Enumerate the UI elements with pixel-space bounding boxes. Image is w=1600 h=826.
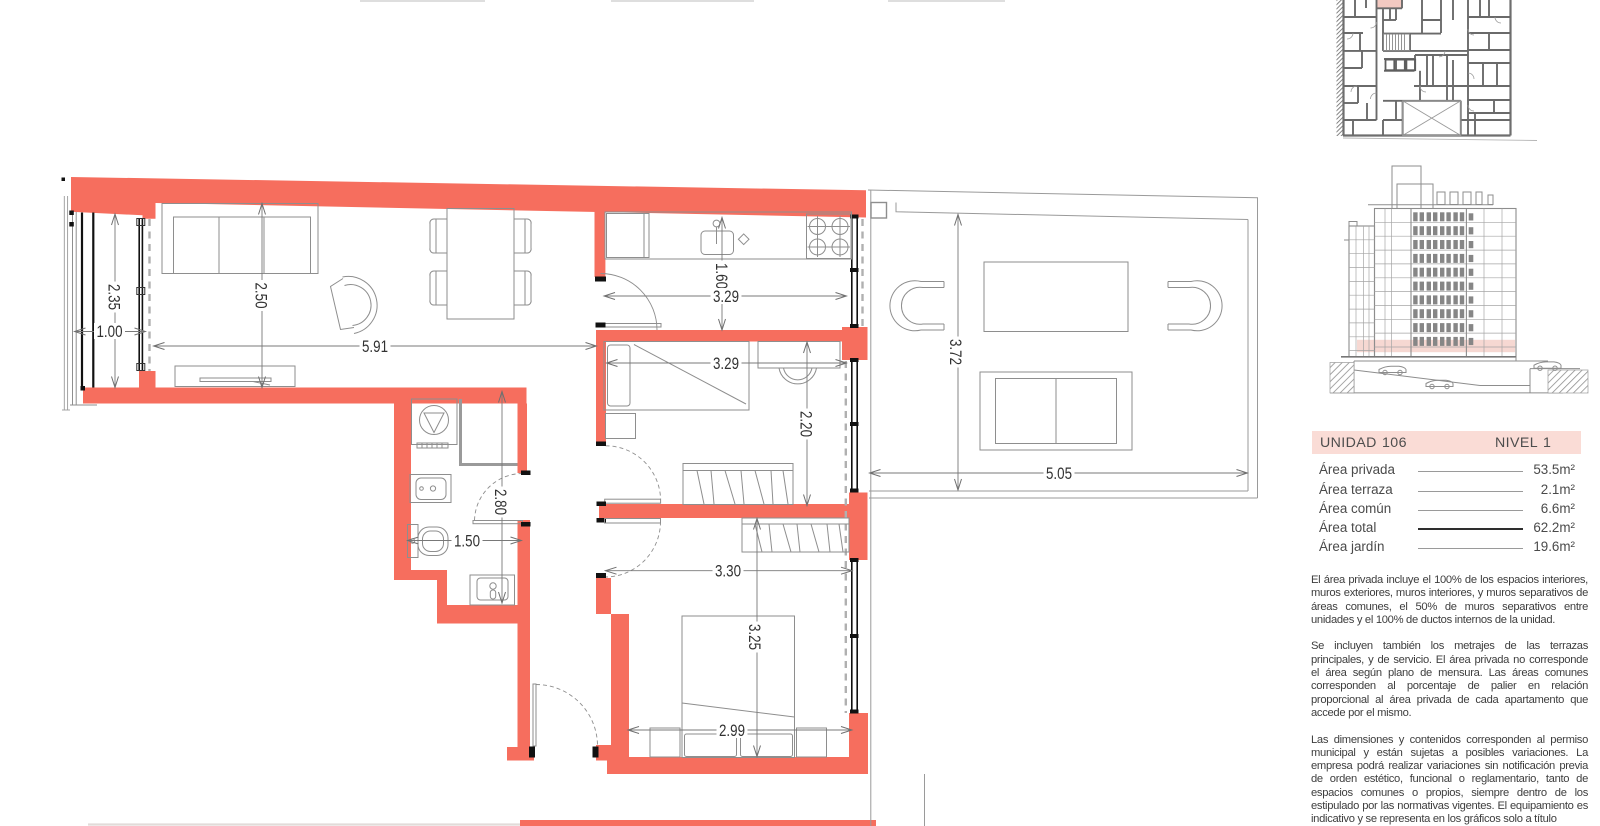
- svg-text:1.00: 1.00: [97, 322, 123, 341]
- svg-text:3.72: 3.72: [946, 339, 965, 365]
- svg-text:5.91: 5.91: [362, 337, 388, 356]
- svg-text:2.20: 2.20: [797, 411, 816, 437]
- svg-text:3.30: 3.30: [715, 562, 741, 581]
- svg-text:1.50: 1.50: [454, 532, 480, 551]
- svg-text:3.29: 3.29: [713, 354, 739, 373]
- svg-text:2.99: 2.99: [719, 721, 745, 740]
- svg-text:5.05: 5.05: [1046, 464, 1072, 483]
- svg-text:2.35: 2.35: [105, 284, 124, 310]
- svg-text:2.80: 2.80: [491, 489, 510, 515]
- svg-text:3.25: 3.25: [745, 624, 764, 650]
- svg-text:3.29: 3.29: [713, 287, 739, 306]
- svg-text:1.60: 1.60: [712, 263, 731, 289]
- svg-text:2.50: 2.50: [252, 283, 271, 309]
